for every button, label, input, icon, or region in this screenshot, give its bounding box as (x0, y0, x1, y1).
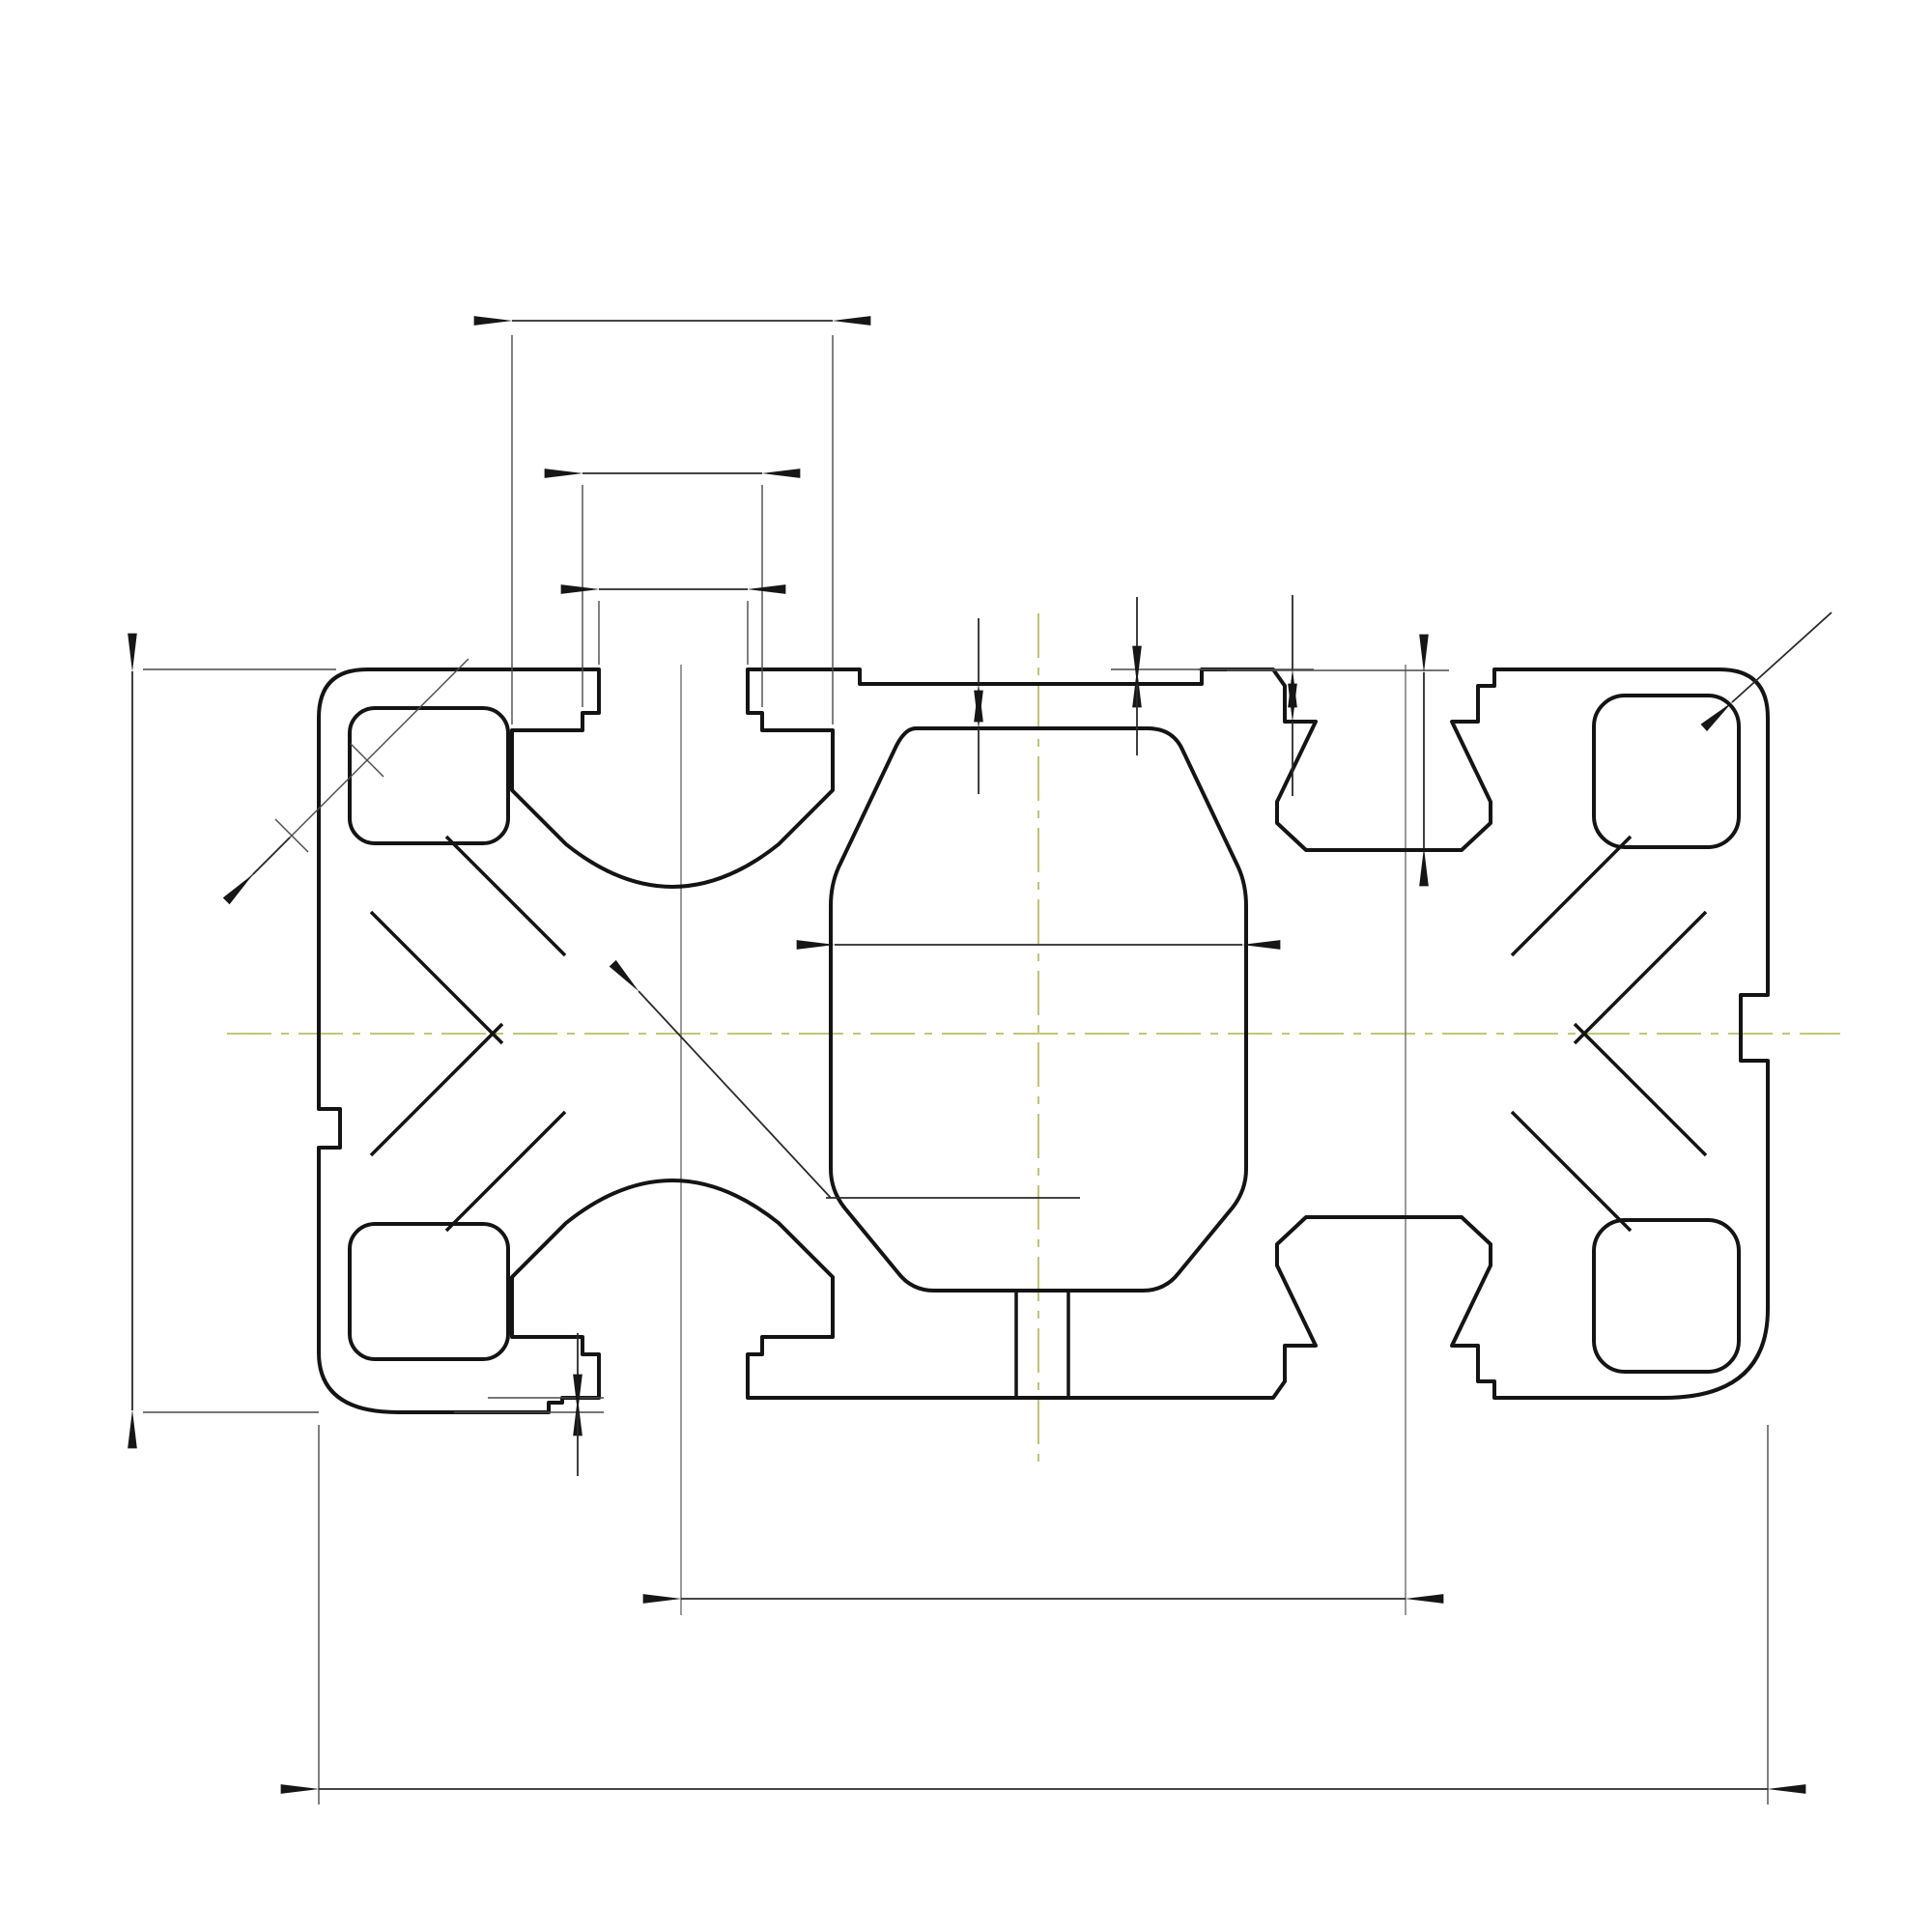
technical-drawing (0, 0, 1932, 1932)
profile-outline (319, 669, 1768, 1412)
outer-contour (319, 669, 1768, 1412)
bottom-center-channel (1016, 1291, 1068, 1398)
cavity-top-right (1594, 696, 1739, 847)
cavity-top-left (350, 708, 508, 843)
hole-note-leader (639, 991, 831, 1198)
centerlines (227, 613, 1840, 1468)
cavity-bottom-left (350, 1224, 508, 1359)
hole-axis-lines (681, 665, 1406, 1615)
cavity-bottom-right (1594, 1220, 1739, 1372)
dimension-lines (132, 321, 1832, 1804)
extension-lines (143, 335, 1768, 1804)
dim-r3-leader (1732, 612, 1832, 702)
